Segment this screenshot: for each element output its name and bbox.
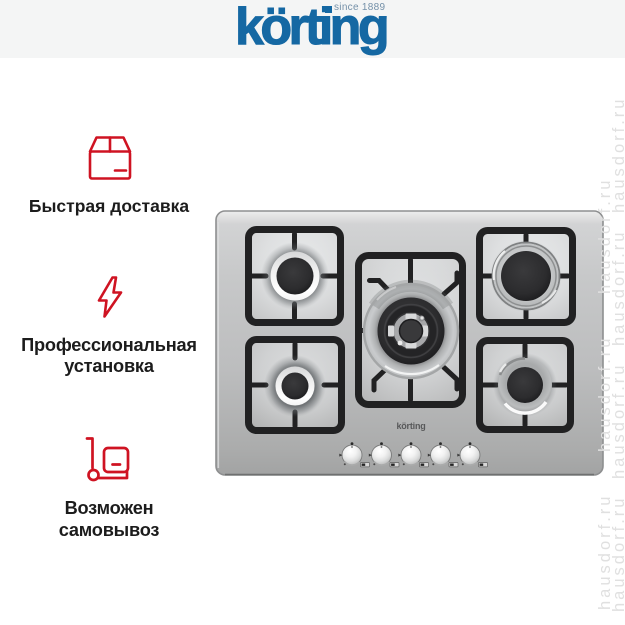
- svg-text:körting: körting: [396, 421, 425, 431]
